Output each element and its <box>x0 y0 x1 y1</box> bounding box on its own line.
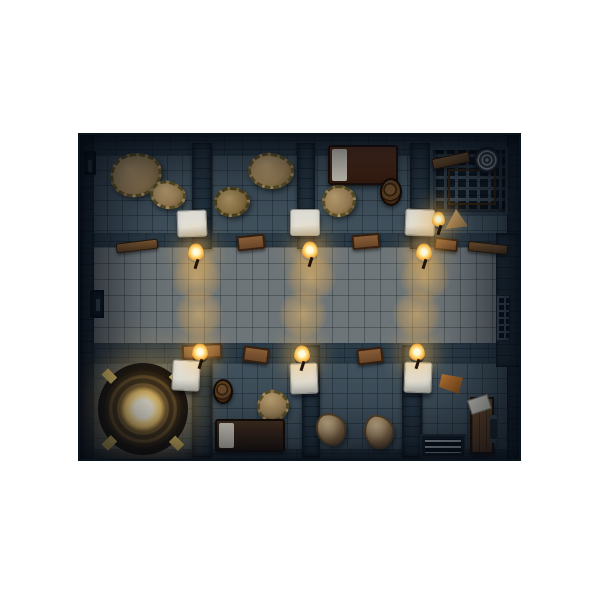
bed <box>215 419 285 452</box>
page-canvas <box>0 0 600 600</box>
barrel <box>213 379 233 404</box>
wall-torch <box>409 343 425 363</box>
cell-door <box>171 359 201 391</box>
wall-torch <box>188 243 204 263</box>
torch-light-pool <box>168 283 230 345</box>
wood-tray <box>356 346 384 365</box>
barrel <box>380 178 402 206</box>
cage-wood-platform <box>448 169 496 205</box>
wood-tray <box>236 234 265 252</box>
grate-stairs <box>420 434 466 458</box>
torch-light-pool <box>386 283 448 345</box>
wall-torch <box>192 343 208 363</box>
cell-door <box>405 208 436 236</box>
wood-tray <box>351 233 380 250</box>
torch-light-pool <box>272 283 334 345</box>
wall-torch <box>416 243 432 263</box>
cell-door <box>177 209 208 237</box>
wood-tray <box>433 237 458 252</box>
wall-grate <box>496 295 510 341</box>
dungeon-map-illustration <box>78 133 521 461</box>
wall-torch <box>294 345 310 365</box>
wooden-stocks-door <box>470 397 494 454</box>
left-wall-door <box>90 290 104 318</box>
wall-torch <box>432 211 445 229</box>
cell-door <box>290 209 320 236</box>
wood-tray <box>242 345 270 364</box>
wall-torch <box>302 241 318 261</box>
wall-recess <box>84 151 96 175</box>
cell-door <box>289 363 318 395</box>
